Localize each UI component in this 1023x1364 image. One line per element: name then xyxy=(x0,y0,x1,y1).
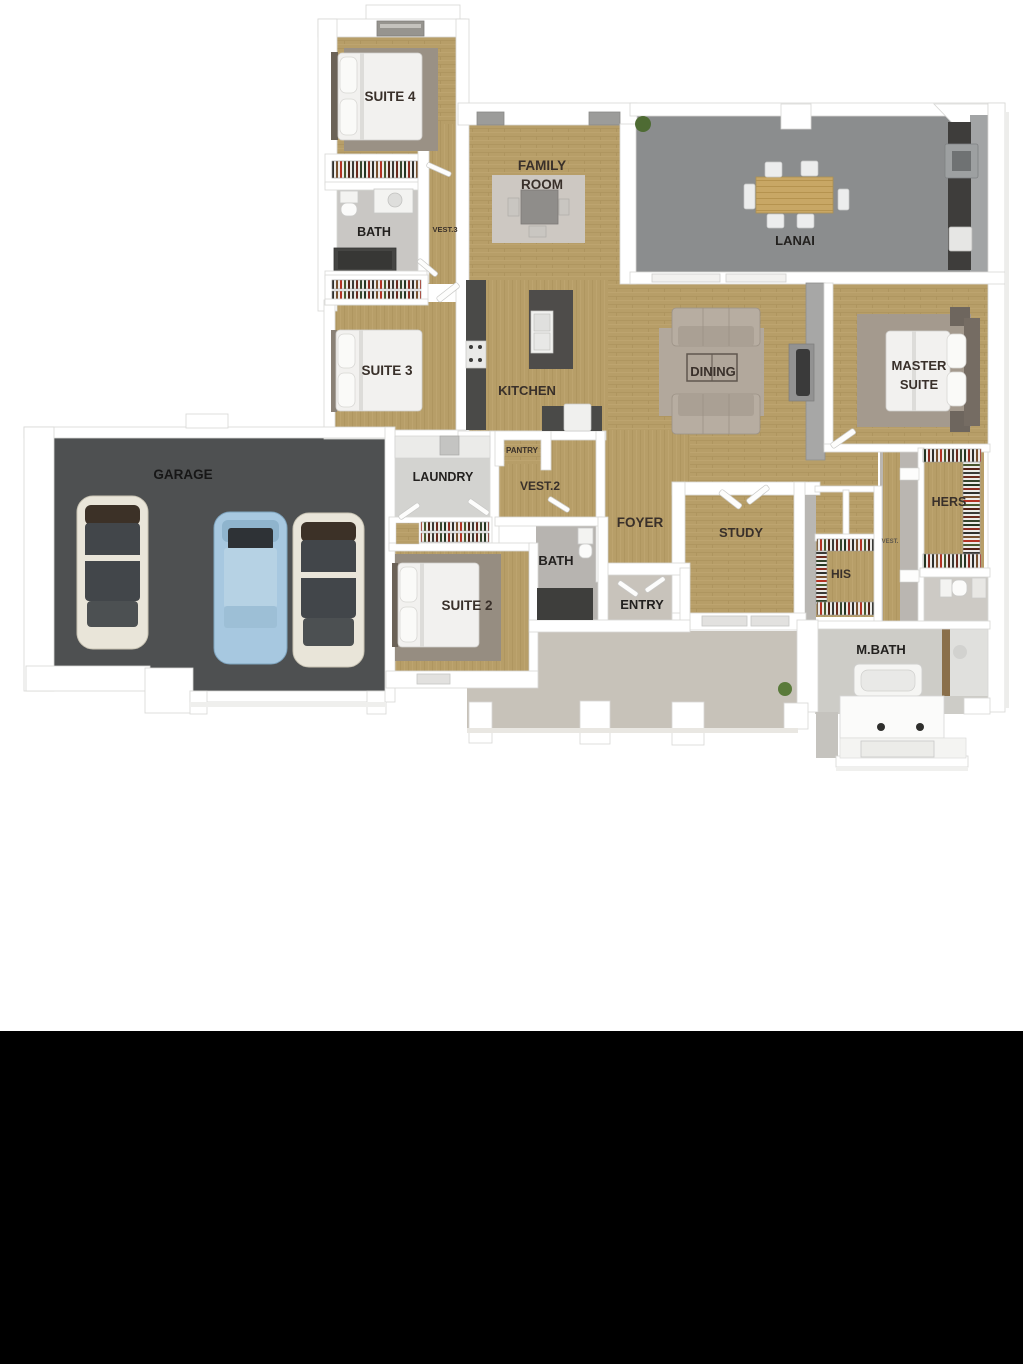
svg-text:STUDY: STUDY xyxy=(719,525,763,540)
svg-text:LANAI: LANAI xyxy=(775,233,815,248)
svg-text:HIS: HIS xyxy=(831,567,851,581)
svg-text:ENTRY: ENTRY xyxy=(620,597,664,612)
svg-text:SUITE 4: SUITE 4 xyxy=(364,89,416,104)
svg-text:SUITE 3: SUITE 3 xyxy=(361,363,413,378)
svg-text:LAUNDRY: LAUNDRY xyxy=(413,470,474,484)
svg-text:MASTER: MASTER xyxy=(892,358,948,373)
svg-text:FAMILY: FAMILY xyxy=(518,158,566,173)
svg-text:HERS: HERS xyxy=(932,495,967,509)
svg-text:DINING: DINING xyxy=(690,364,736,379)
svg-text:VEST.3: VEST.3 xyxy=(432,225,457,234)
svg-text:BATH: BATH xyxy=(538,553,573,568)
svg-text:KITCHEN: KITCHEN xyxy=(498,383,556,398)
svg-text:SUITE: SUITE xyxy=(900,377,939,392)
svg-text:FOYER: FOYER xyxy=(617,515,664,530)
svg-text:GARAGE: GARAGE xyxy=(153,467,212,482)
svg-text:VEST.: VEST. xyxy=(882,539,899,545)
svg-text:ROOM: ROOM xyxy=(521,177,563,192)
svg-text:BATH: BATH xyxy=(357,225,391,239)
svg-text:M.BATH: M.BATH xyxy=(856,642,906,657)
svg-text:VEST.2: VEST.2 xyxy=(520,479,560,493)
svg-text:PANTRY: PANTRY xyxy=(506,446,539,455)
svg-text:SUITE 2: SUITE 2 xyxy=(441,598,492,613)
